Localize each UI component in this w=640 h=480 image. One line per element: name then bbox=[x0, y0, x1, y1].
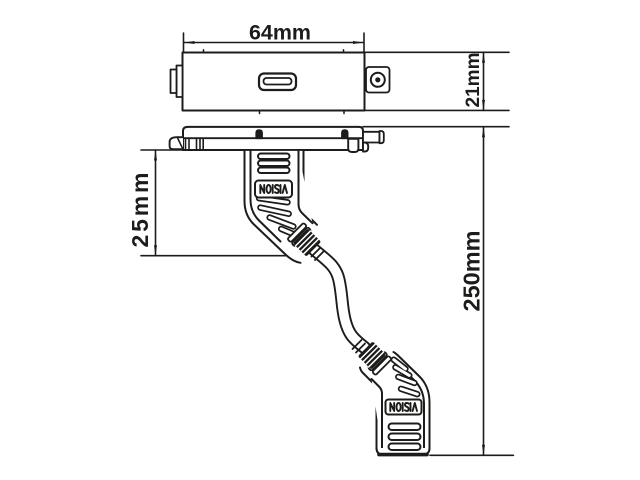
svg-text:64mm: 64mm bbox=[249, 21, 311, 45]
svg-text:25mm: 25mm bbox=[127, 173, 153, 248]
svg-text:21mm: 21mm bbox=[462, 53, 484, 108]
svg-text:250mm: 250mm bbox=[459, 231, 485, 312]
